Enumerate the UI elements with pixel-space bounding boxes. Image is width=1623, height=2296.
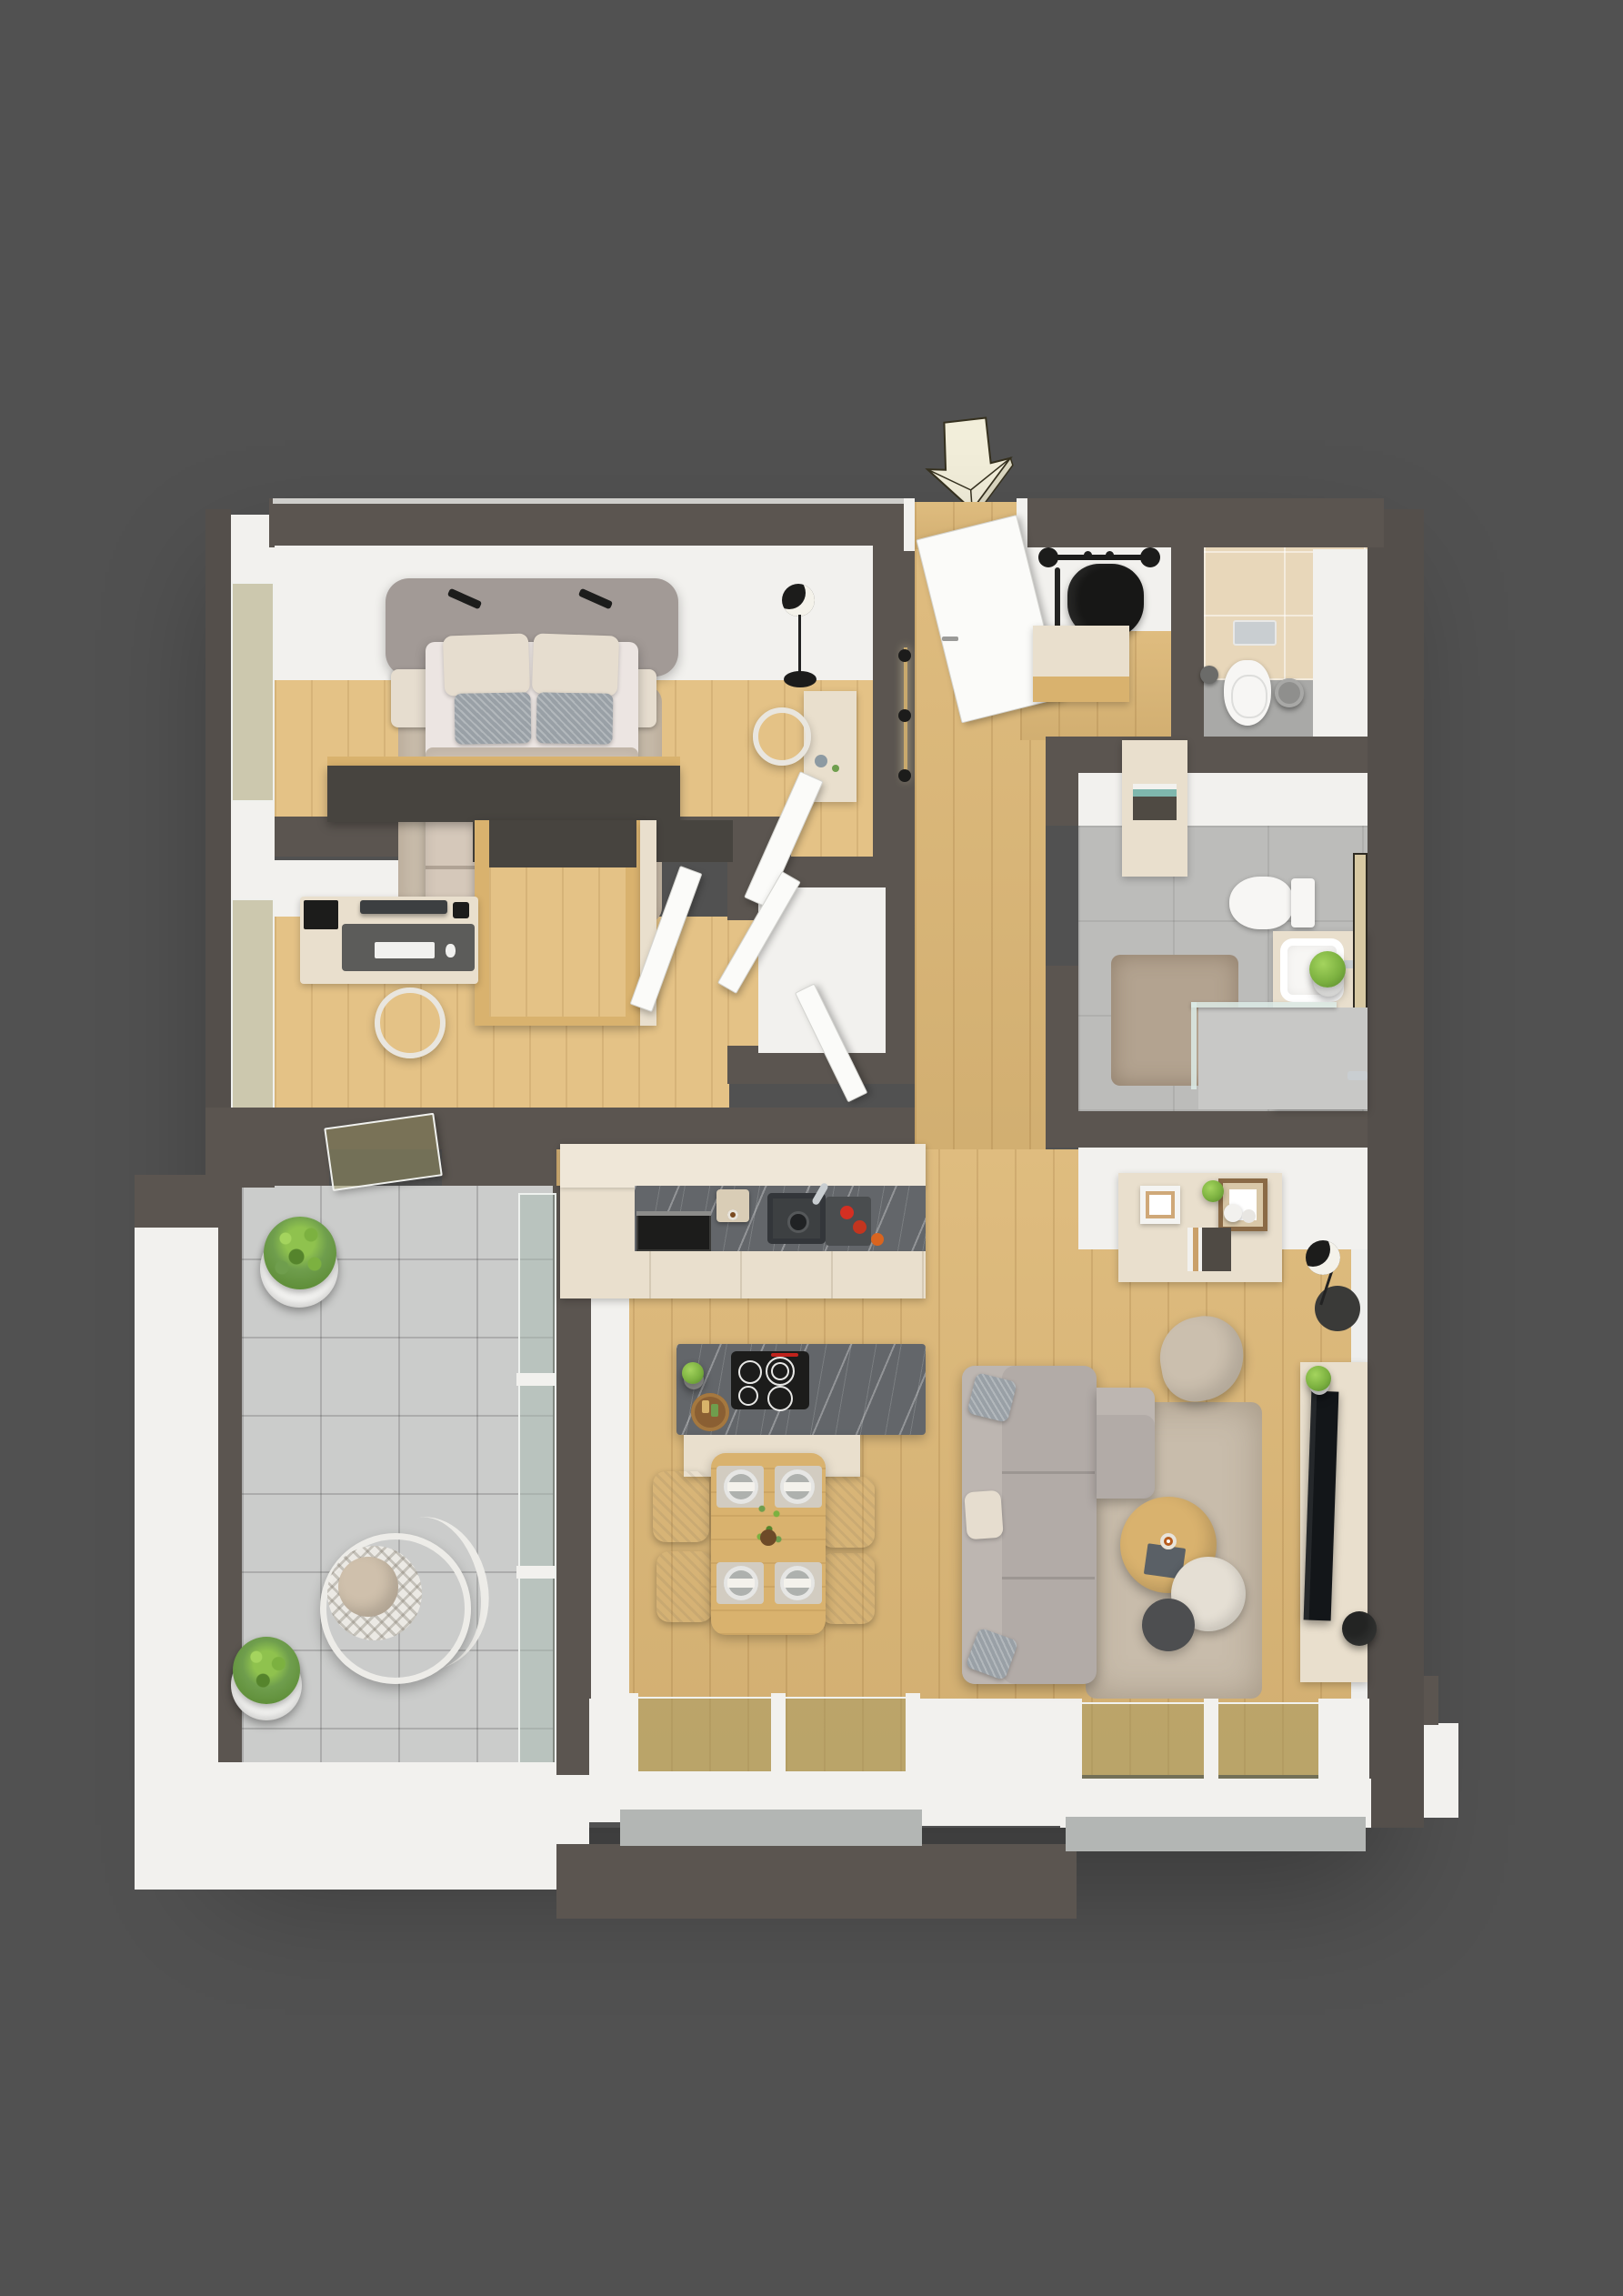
terrace-left-exterior: [135, 1228, 218, 1890]
sofa-chaise: [1097, 1388, 1155, 1499]
bathroom-cabinet-shelf: [1133, 784, 1177, 820]
wc-flush-plate: [1233, 620, 1277, 646]
living-floor-lamp-base: [1315, 1286, 1360, 1331]
black-vase: [1342, 1611, 1377, 1646]
wc-toilet-seat-line: [1231, 675, 1267, 718]
bathroom-toilet-bowl: [1229, 877, 1293, 929]
sideboard-frame-small: [1140, 1186, 1180, 1224]
bed-cushion-left: [455, 692, 532, 744]
terrace-left-inner-wall: [218, 1175, 242, 1810]
apple-2: [853, 1220, 867, 1234]
hall-light-dot3: [898, 769, 911, 782]
bedroom-floor-lamp-stem: [798, 615, 801, 678]
sideboard-vase-1: [1224, 1204, 1242, 1222]
coat-rack-hook-mid2: [1106, 551, 1114, 559]
window-south-right-post1: [1067, 1699, 1082, 1790]
wc-waste-bin: [1275, 678, 1304, 707]
burner-1: [738, 1360, 762, 1384]
sideboard-frame-large: [1218, 1178, 1267, 1231]
desk-organizer: [453, 902, 469, 918]
office-window: [231, 898, 275, 1129]
south-slab-center: [556, 1844, 1077, 1919]
coffee-cup: [727, 1209, 738, 1220]
wc-toilet-brush: [1200, 666, 1218, 684]
entrance-door-handle: [942, 637, 958, 641]
island-serving-tray: [691, 1393, 729, 1431]
dining-chair-se: [820, 1553, 875, 1624]
wall-bathroom-north: [1046, 737, 1368, 773]
napkin-sw: [727, 1579, 755, 1588]
apple-1: [840, 1206, 854, 1219]
wc-east-face: [1313, 549, 1368, 740]
bedroom-wardrobe: [327, 766, 680, 822]
murphy-bed-surface: [489, 867, 626, 1017]
vanity-items: [815, 755, 827, 767]
napkin-ne: [784, 1482, 811, 1491]
napkin-nw: [727, 1482, 755, 1491]
desktop-monitor: [360, 900, 447, 914]
hall-light-dot2: [898, 709, 911, 722]
bedroom-window: [231, 582, 275, 802]
napkin-se: [784, 1579, 811, 1588]
dining-chair-ne: [820, 1477, 875, 1548]
sink-drain: [787, 1211, 809, 1233]
shower-floor: [1198, 1008, 1368, 1109]
sofa-seam2: [1002, 1577, 1095, 1579]
terrace-north-wall-b: [442, 1138, 556, 1186]
dining-chair-sw: [656, 1551, 713, 1622]
coffee-cup-table: [1160, 1533, 1177, 1549]
built-in-oven: [636, 1211, 711, 1251]
bed-pillow-right: [532, 633, 619, 696]
coat-rack-hook-mid1: [1084, 551, 1092, 559]
bathroom-toilet-tank: [1291, 878, 1315, 927]
coat-rack-hook-left: [1038, 547, 1058, 567]
kitchen-upper-row: [560, 1144, 926, 1188]
bathroom-mirror: [1353, 853, 1368, 1011]
window-south-right-post2: [1204, 1699, 1218, 1790]
hall-light-dot1: [898, 649, 911, 662]
tv-plant: [1306, 1366, 1331, 1391]
office-chair: [375, 988, 446, 1058]
mouse: [446, 944, 456, 958]
terrace-east-glazing: [518, 1193, 556, 1775]
table-vase: [760, 1529, 776, 1546]
cooktop-controls: [771, 1353, 798, 1357]
shower-glass-h: [1191, 1002, 1337, 1008]
window-south-left-post1: [624, 1693, 638, 1784]
coffee-table-dark: [1142, 1599, 1195, 1651]
wall-entry-wc: [1171, 498, 1204, 740]
wall-bathroom-west-a: [1046, 773, 1078, 826]
bed-pillow-left: [443, 633, 530, 696]
entrance-door-post-left: [904, 498, 915, 551]
vanity-chair: [753, 707, 811, 766]
window-south-left-threshold: [620, 1810, 922, 1846]
hanging-chair-cushion: [338, 1557, 398, 1617]
sofa-seam1: [1002, 1471, 1095, 1474]
window-south-right-threshold: [1066, 1817, 1366, 1851]
outer-wall-left-edge: [205, 509, 231, 1191]
bedroom-floor-lamp-head: [782, 584, 815, 617]
floor-plan-render: [0, 0, 1623, 2296]
window-south-left-post2: [771, 1693, 786, 1784]
shower-fixture: [1347, 1071, 1368, 1080]
bed-cushion-right: [536, 692, 614, 744]
window-south-left-post3: [906, 1693, 920, 1784]
bedroom-floor-lamp-base: [784, 671, 817, 687]
wall-bathroom-south: [1046, 1111, 1368, 1148]
coat-rack-hook-right: [1140, 547, 1160, 567]
tray-items: [702, 1400, 709, 1413]
island-herb: [682, 1362, 704, 1384]
apple-3: [871, 1233, 884, 1246]
sofa-cushion-mid: [964, 1490, 1004, 1540]
murphy-unit-panel: [489, 820, 636, 867]
wall-corridor-west: [873, 509, 915, 857]
burner-4: [767, 1386, 793, 1411]
living-floor-lamp-head: [1306, 1240, 1340, 1275]
sideboard-vase-2: [1242, 1209, 1256, 1223]
south-pillar-mid: [915, 1699, 1073, 1826]
burner-3: [738, 1386, 758, 1406]
terrace-glazing-post1: [516, 1373, 555, 1386]
terrace-glazing-post2: [516, 1566, 555, 1579]
bathroom-plant: [1309, 951, 1346, 988]
entry-sideboard-shelf: [1033, 677, 1129, 702]
shower-glass-v: [1191, 1002, 1197, 1089]
keyboard: [375, 942, 435, 958]
wardrobe-top-edge: [327, 757, 680, 766]
terrace-south-curb: [218, 1762, 556, 1811]
terrace-north-wall-a: [218, 1138, 329, 1186]
north-wall-highlight: [273, 498, 906, 504]
sideboard-open-niche: [1187, 1228, 1231, 1271]
desk-books: [304, 900, 338, 929]
burner-2: [766, 1357, 795, 1386]
terrace-plant-south: [233, 1637, 300, 1704]
sideboard-plant: [1202, 1180, 1224, 1202]
north-wall-west: [269, 498, 907, 547]
dining-chair-nw: [653, 1471, 709, 1542]
terrace-plant-north: [264, 1217, 336, 1289]
window-south-right-post3: [1318, 1699, 1331, 1790]
